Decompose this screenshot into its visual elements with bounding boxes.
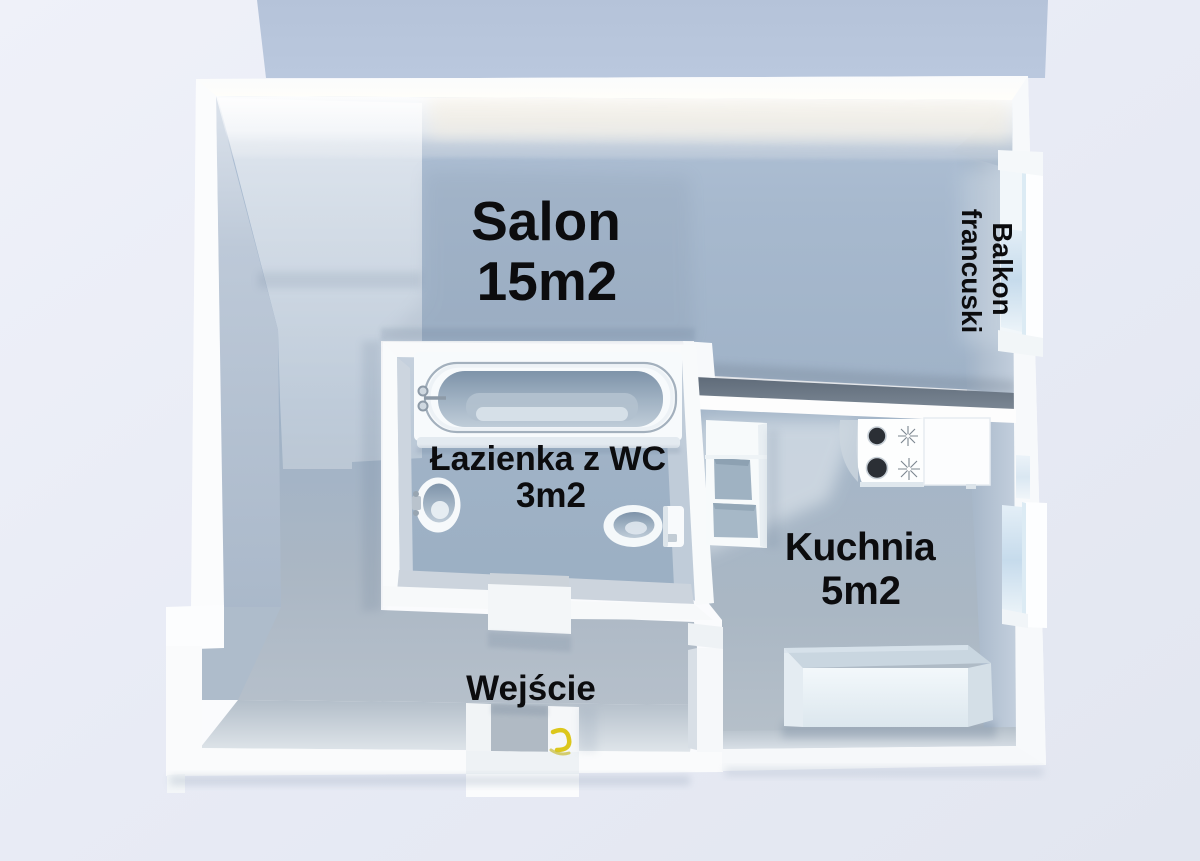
svg-text:Wejście: Wejście bbox=[466, 669, 596, 708]
svg-text:5m2: 5m2 bbox=[821, 569, 901, 613]
svg-text:15m2: 15m2 bbox=[477, 250, 618, 312]
svg-text:Balkon: Balkon bbox=[987, 222, 1018, 315]
svg-text:Salon: Salon bbox=[471, 190, 621, 252]
svg-text:3m2: 3m2 bbox=[516, 476, 586, 515]
svg-text:francuski: francuski bbox=[956, 209, 987, 334]
svg-text:Łazienka z WC: Łazienka z WC bbox=[430, 440, 666, 478]
svg-text:Kuchnia: Kuchnia bbox=[785, 526, 936, 569]
